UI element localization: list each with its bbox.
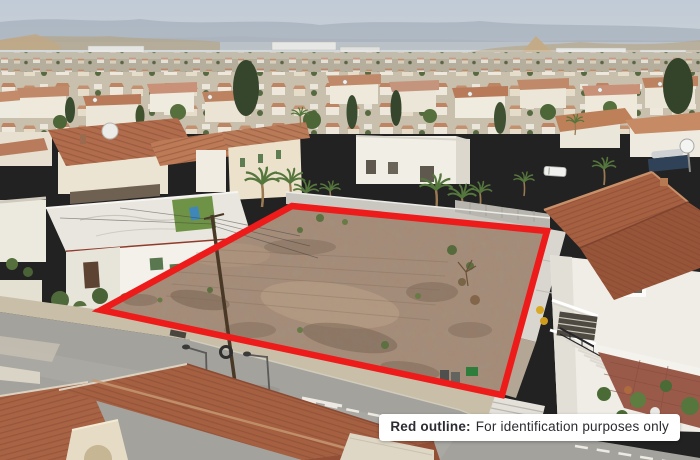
right-background-houses xyxy=(544,108,700,177)
disclaimer-text: For identification purposes only xyxy=(476,419,669,434)
aerial-photo: Red outline:For identification purposes … xyxy=(0,0,700,460)
terracotta-pot xyxy=(624,386,632,394)
white-modern-house xyxy=(356,136,470,184)
yellow-barrel xyxy=(536,306,544,314)
disclaimer-label: Red outline: xyxy=(390,419,470,434)
front-door xyxy=(83,261,100,288)
yellow-barrel xyxy=(540,317,548,325)
disclaimer-badge: Red outline:For identification purposes … xyxy=(379,414,680,441)
chimney xyxy=(660,178,668,186)
parked-car xyxy=(544,166,567,177)
photo-scene xyxy=(0,0,700,460)
water-tank xyxy=(102,123,118,139)
globe-street-lamp xyxy=(680,139,694,153)
right-house xyxy=(544,172,700,432)
green-shutter-window xyxy=(150,258,164,271)
